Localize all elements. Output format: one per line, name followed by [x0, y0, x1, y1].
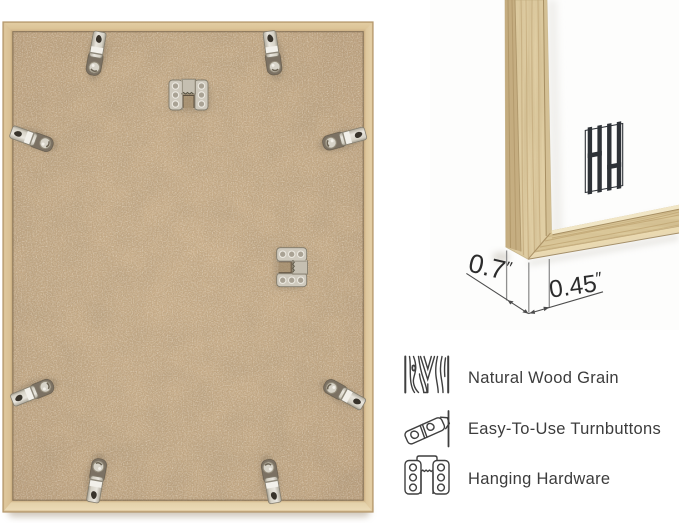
svg-text:Natural Wood Grain: Natural Wood Grain: [468, 369, 619, 387]
svg-text:Easy-To-Use Turnbuttons: Easy-To-Use Turnbuttons: [468, 420, 661, 438]
svg-text:Hanging Hardware: Hanging Hardware: [468, 470, 610, 488]
